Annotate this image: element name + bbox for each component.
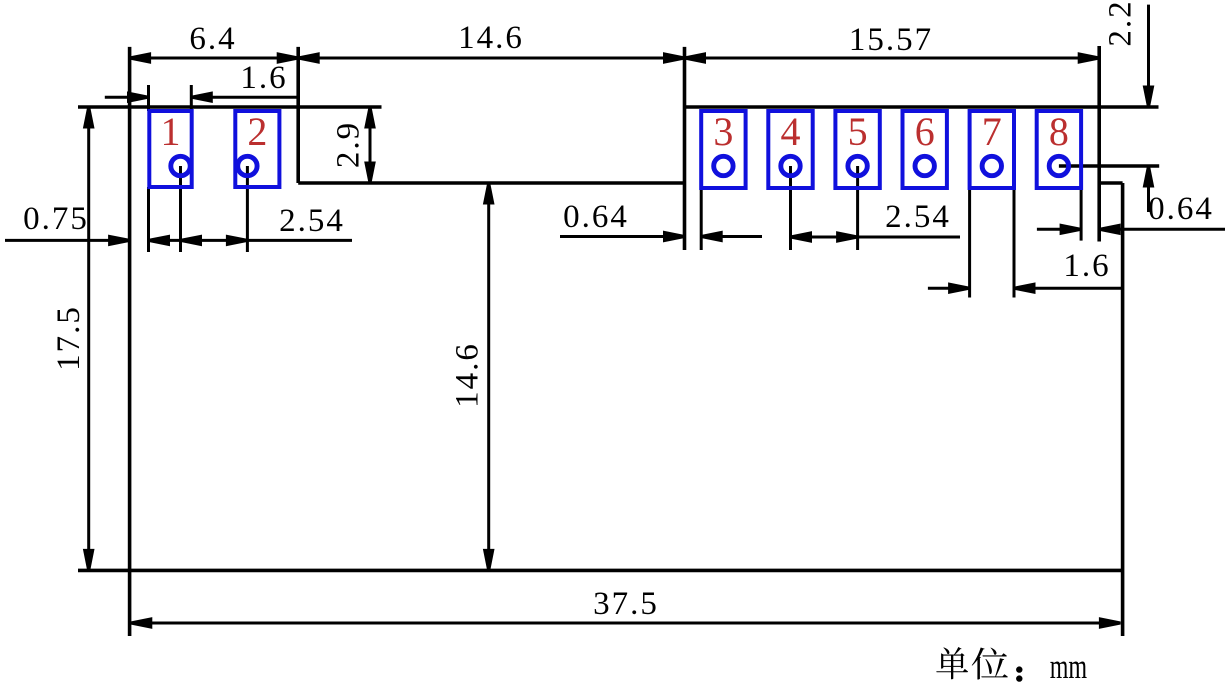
svg-text:15.57: 15.57	[849, 22, 933, 58]
svg-text:6: 6	[915, 109, 935, 154]
svg-text:2.54: 2.54	[885, 199, 951, 235]
svg-text:1.6: 1.6	[240, 60, 287, 96]
svg-text:14.6: 14.6	[450, 342, 486, 408]
svg-text:2.54: 2.54	[279, 203, 345, 239]
svg-text:5: 5	[848, 109, 868, 154]
svg-text:2: 2	[247, 109, 267, 154]
svg-text:17.5: 17.5	[51, 305, 87, 371]
svg-text:14.6: 14.6	[458, 20, 524, 56]
svg-text:2.9: 2.9	[331, 121, 367, 168]
svg-text:1.6: 1.6	[1063, 248, 1110, 284]
svg-text:7: 7	[982, 109, 1002, 154]
svg-text:3: 3	[713, 109, 733, 154]
svg-text:4: 4	[781, 109, 801, 154]
svg-text:8: 8	[1049, 109, 1069, 154]
svg-text:6.4: 6.4	[189, 21, 236, 57]
svg-text:0.64: 0.64	[1148, 191, 1214, 227]
svg-text:37.5: 37.5	[593, 586, 659, 622]
svg-text:2.2: 2.2	[1103, 0, 1139, 47]
svg-text:0.75: 0.75	[23, 201, 89, 237]
svg-text:1: 1	[161, 109, 181, 154]
svg-text:0.64: 0.64	[563, 199, 629, 235]
